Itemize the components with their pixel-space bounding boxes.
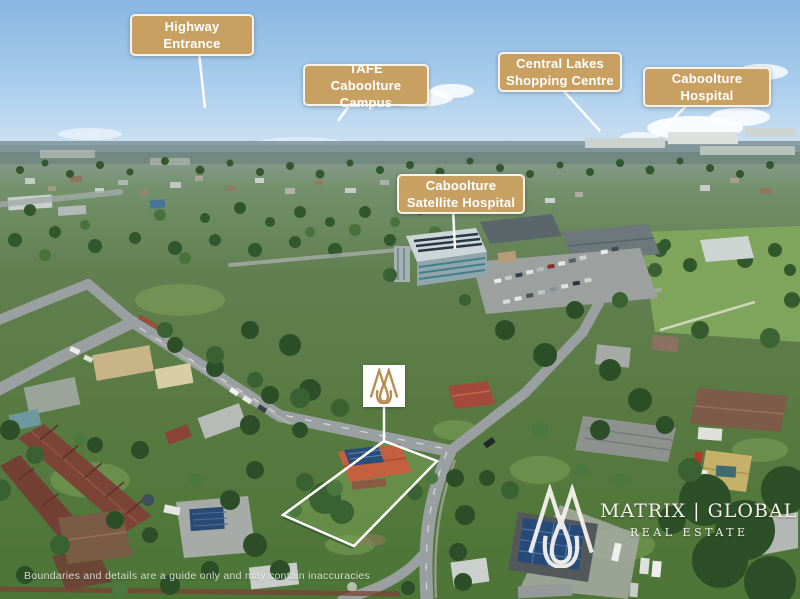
callout-text: Caboolture (426, 177, 497, 194)
callout-highway-entrance: Highway Entrance (130, 14, 254, 56)
aerial-photo: Highway Entrance TAFE Caboolture Campus … (0, 0, 800, 599)
leader-line-highway (199, 53, 205, 108)
callout-text: Satellite Hospital (407, 194, 515, 211)
property-marker (363, 365, 405, 407)
leader-line-central-lakes (561, 88, 600, 131)
callout-text: Hospital (681, 87, 734, 104)
callout-central-lakes: Central Lakes Shopping Centre (498, 52, 622, 92)
callout-satellite-hospital: Caboolture Satellite Hospital (397, 174, 525, 214)
agency-name: MATRIX | GLOBAL (600, 500, 786, 522)
callout-text: Shopping Centre (506, 72, 614, 89)
callout-text: TAFE (349, 60, 383, 77)
callout-caboolture-hospital: Caboolture Hospital (643, 67, 771, 107)
leader-line-satellite-hospital (453, 209, 455, 249)
matrix-monogram-white-icon (526, 484, 596, 568)
disclaimer-text: Boundaries and details are a guide only … (24, 570, 370, 582)
callout-text: Central Lakes (516, 55, 604, 72)
callout-tafe-campus: TAFE Caboolture Campus (303, 64, 429, 106)
property-boundary (283, 441, 437, 546)
callout-text: Entrance (163, 35, 220, 52)
callout-text: Highway (165, 18, 220, 35)
agency-logo: MATRIX | GLOBAL REAL ESTATE (526, 484, 786, 570)
leader-line-hospital (662, 103, 689, 130)
callout-text: Caboolture Campus (305, 77, 427, 111)
callout-text: Caboolture (672, 70, 743, 87)
matrix-monogram-gold-icon (369, 368, 399, 404)
agency-tagline: REAL ESTATE (630, 526, 749, 539)
